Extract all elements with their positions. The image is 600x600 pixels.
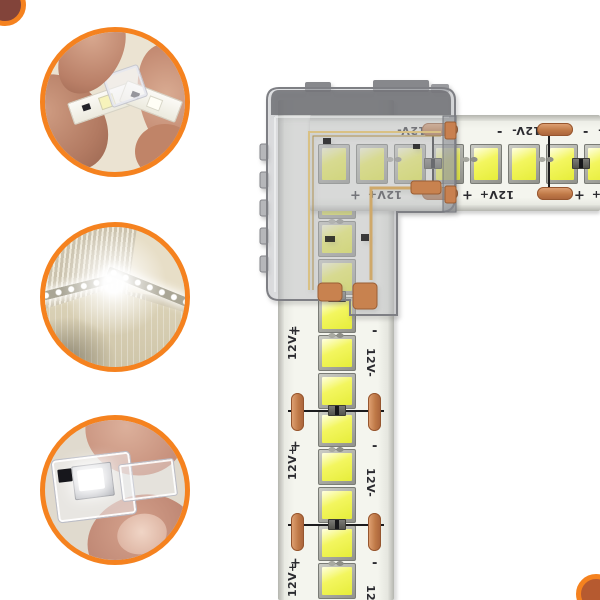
voltage-label-positive: 12V+ — [590, 188, 600, 200]
corner-accent-circle — [576, 574, 600, 600]
polarity-minus-sign: - — [583, 125, 588, 138]
product-photo-canvas: +12V++12V++12V+-12V--12V--12V- -12V--12V… — [0, 0, 600, 600]
corner-connector-graphic — [265, 86, 458, 315]
led-chip — [318, 411, 356, 447]
led-chip — [318, 487, 356, 523]
lit-led-chip — [77, 467, 105, 491]
polarity-plus-sign: + — [462, 188, 473, 201]
voltage-label-positive: 12V+ — [478, 188, 514, 200]
voltage-label-positive: 12V+ — [287, 324, 299, 360]
resistor — [328, 405, 346, 416]
copper-pad — [368, 393, 381, 431]
led-chip — [318, 563, 356, 599]
corner-shadow — [40, 317, 115, 372]
led-die — [322, 339, 352, 367]
inset-circle-connect-strips — [40, 27, 190, 177]
corner-connector — [265, 86, 458, 315]
black-component — [57, 468, 72, 483]
voltage-label-positive: 12V+ — [287, 561, 299, 597]
mini-led-chip — [146, 95, 163, 111]
polarity-minus-sign: - — [372, 557, 377, 570]
voltage-label-positive: 12V+ — [287, 444, 299, 480]
corner-connector-shell — [260, 80, 456, 315]
voltage-label-negative: 12V- — [364, 468, 376, 504]
copper-pad — [291, 393, 304, 431]
led-die — [550, 148, 574, 180]
finger — [135, 124, 190, 177]
smd-component — [538, 155, 554, 164]
led-chip — [318, 449, 356, 485]
led-chip — [470, 144, 502, 184]
led-chip — [318, 373, 356, 409]
led-die — [512, 148, 536, 180]
smd-component — [462, 155, 478, 164]
voltage-label-negative: 12V- — [505, 124, 541, 136]
copper-pad — [291, 513, 304, 551]
led-die — [322, 377, 352, 405]
resistor — [572, 158, 590, 169]
led-chip — [508, 144, 540, 184]
led-chip — [318, 525, 356, 561]
corner-accent-circle — [0, 0, 26, 26]
led-die — [322, 453, 352, 481]
voltage-label-negative: 12V- — [591, 124, 600, 136]
led-die — [322, 491, 352, 519]
inset-circle-connector-closeup — [40, 415, 190, 565]
clear-connector-arm — [119, 459, 177, 501]
polarity-plus-sign: + — [574, 188, 585, 201]
smd-component — [328, 445, 344, 454]
polarity-minus-sign: - — [497, 125, 502, 138]
led-die — [474, 148, 498, 180]
led-chip — [318, 335, 356, 371]
mini-component — [82, 103, 92, 111]
voltage-label-negative: 12V- — [364, 585, 376, 600]
led-die — [322, 529, 352, 557]
resistor — [328, 519, 346, 530]
voltage-label-negative: 12V- — [364, 348, 376, 384]
smd-component — [328, 559, 344, 568]
smd-component — [328, 331, 344, 340]
polarity-minus-sign: - — [372, 325, 377, 338]
copper-pad — [537, 123, 573, 136]
copper-pad — [368, 513, 381, 551]
copper-pad — [537, 187, 573, 200]
inset-circle-installed-corner — [40, 222, 190, 372]
led-die — [322, 415, 352, 443]
polarity-minus-sign: - — [372, 440, 377, 453]
led-die — [322, 567, 352, 595]
